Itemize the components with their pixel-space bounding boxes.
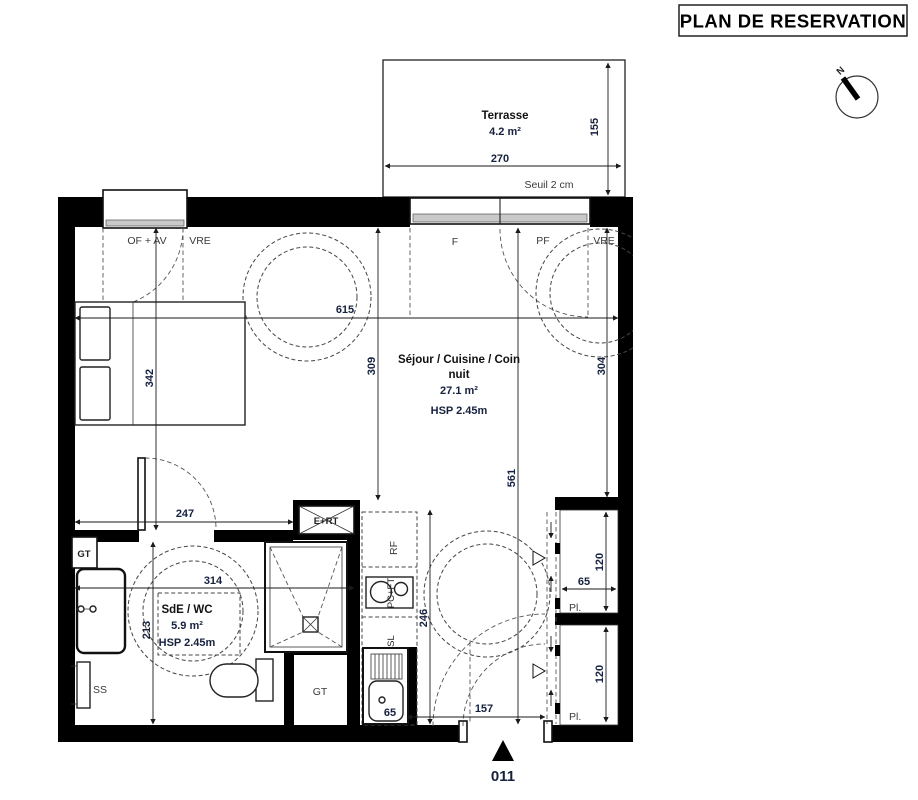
closet-top-outline: [560, 510, 618, 613]
label-vre-left: VRE: [189, 235, 211, 247]
cooktop-label: PC+FT: [386, 578, 397, 609]
kitchen-sink-dim: 65: [384, 707, 396, 719]
bathroom-name: SdE / WC: [161, 604, 212, 616]
wall-gt-closet-left: [284, 648, 294, 725]
label-of-av: OF + AV: [127, 235, 166, 247]
living-room-label: Séjour / Cuisine / Coin nuit 27.1 m² HSP…: [398, 354, 520, 417]
circle-hall-inner: [437, 544, 537, 644]
wall-top-middle: [187, 197, 410, 227]
wall-closet-top: [555, 497, 618, 510]
wall-bottom-left: [58, 725, 465, 742]
entrance-number: 011: [491, 768, 515, 785]
terrace-depth-dim: 155: [589, 118, 601, 136]
duct-box: E+RT: [299, 506, 354, 534]
kitchen-sink-tap: [379, 697, 385, 703]
slider-guide: [555, 645, 560, 656]
dim-246: 246: [418, 609, 430, 627]
wall-kitchen-separator: [347, 540, 360, 742]
slider-direction-marker-top: [533, 551, 545, 565]
living-ceiling: HSP 2.45m: [431, 405, 488, 417]
dim-342: 342: [144, 369, 156, 387]
terrace: Terrasse 4.2 m² 270 155 Seuil 2 cm: [383, 60, 625, 197]
duct-label: E+RT: [314, 516, 339, 527]
terrace-sill-label: Seuil 2 cm: [524, 179, 573, 191]
dim-157: 157: [475, 703, 493, 715]
entrance-jamb-right: [544, 721, 552, 742]
compass-north-label: N: [835, 65, 848, 78]
bed: [75, 302, 245, 425]
entrance-arrow-icon: [492, 740, 514, 761]
wall-left: [58, 197, 75, 742]
gt-upper-label: GT: [77, 549, 90, 560]
laundry-label: SL: [386, 635, 397, 647]
dim-561: 561: [506, 469, 518, 487]
wall-bottom-right: [545, 725, 633, 742]
dim-309: 309: [366, 357, 378, 375]
label-vre-right: VRE: [593, 235, 615, 247]
gt-lower-label: GT: [313, 686, 328, 698]
closet-bottom-label: Pl.: [569, 711, 581, 723]
circle-bedroom-outer: [243, 233, 371, 361]
dim-314: 314: [204, 575, 223, 587]
title-box: PLAN DE RESERVATION: [679, 5, 907, 36]
closet-bottom-outline: [560, 625, 618, 725]
label-f: F: [452, 236, 458, 248]
circle-living-outer: [536, 229, 664, 357]
wc-bowl: [210, 664, 258, 697]
towel-dryer: [77, 662, 90, 708]
washbasin-tap-b: [90, 606, 96, 612]
dim-615: 615: [336, 304, 354, 316]
slider-guide: [555, 598, 560, 609]
bathroom-area: 5.9 m²: [171, 620, 203, 632]
floor-plan-drawing: PLAN DE RESERVATION N Terrasse 4.2 m² 27…: [0, 0, 918, 800]
bathroom-door-leaf: [138, 458, 145, 530]
closet-top-label: Pl.: [569, 602, 581, 614]
circle-living-inner: [550, 243, 650, 343]
closet-bottom-dim: 120: [594, 665, 606, 683]
wall-closet-middle: [555, 613, 618, 625]
closet-width-dim: 65: [578, 576, 590, 588]
washbasin: [77, 569, 125, 653]
living-name-line2: nuit: [448, 369, 469, 381]
entrance: 011: [491, 740, 515, 785]
bathroom: GT SS SdE / WC 5.9 m² HSP 2.45m: [71, 537, 347, 708]
closet-top-dim: 120: [594, 553, 606, 571]
washbasin-tap-a: [78, 606, 84, 612]
floor-plan-page: PLAN DE RESERVATION N Terrasse 4.2 m² 27…: [0, 0, 918, 800]
wall-sink-stub: [408, 647, 417, 725]
fridge-label: RF: [388, 541, 400, 555]
circle-bedroom-inner: [257, 247, 357, 347]
slider-guide: [555, 703, 560, 714]
wall-right: [618, 197, 633, 742]
dim-213: 213: [141, 621, 153, 639]
north-compass: N: [835, 65, 878, 118]
terrace-area: 4.2 m²: [489, 126, 521, 138]
page-title: PLAN DE RESERVATION: [680, 11, 906, 32]
towel-dryer-label: SS: [93, 684, 107, 696]
slider-direction-marker-bottom: [533, 664, 545, 678]
window-of-av-sill: [106, 220, 184, 226]
bed-pillow-bottom: [80, 367, 110, 420]
label-pf: PF: [536, 235, 549, 247]
bathroom-ceiling: HSP 2.45m: [159, 637, 216, 649]
wall-bathroom-north-b: [214, 530, 293, 542]
dim-304: 304: [596, 356, 608, 375]
slider-guide: [555, 543, 560, 554]
circle-hall-outer: [424, 531, 550, 657]
kitchen: RF PC+FT SL 65: [362, 512, 417, 725]
living-area: 27.1 m²: [440, 385, 478, 397]
terrace-width-dim: 270: [491, 153, 509, 165]
bed-pillow-top: [80, 307, 110, 360]
dim-247: 247: [176, 508, 194, 520]
windows: [103, 190, 590, 742]
terrace-name: Terrasse: [481, 110, 528, 122]
living-name-line1: Séjour / Cuisine / Coin: [398, 354, 520, 366]
shower-tray: [265, 542, 347, 652]
opening-labels: OF + AV VRE F PF VRE: [127, 235, 614, 248]
